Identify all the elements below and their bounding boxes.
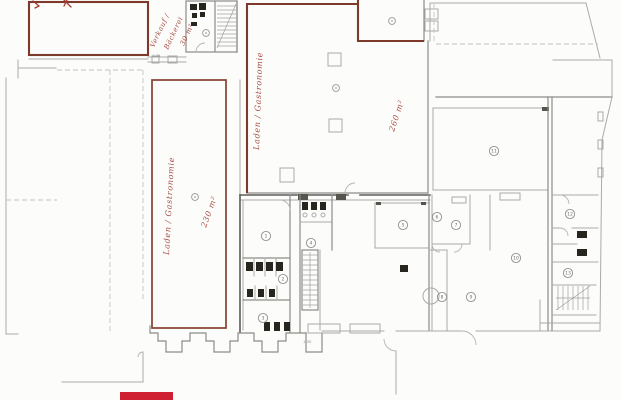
room-number: 2 — [282, 277, 285, 283]
scanned-floor-plan: Verkauf / Bäckerei 30 m² Laden / Gastron… — [0, 0, 622, 400]
floor-plan-drawing: Verkauf / Bäckerei 30 m² Laden / Gastron… — [0, 0, 622, 400]
wc-fixtures-bottom — [264, 322, 290, 331]
room-number: 8 — [441, 295, 444, 301]
room-number: 3 — [262, 316, 265, 322]
room-number: 10 — [513, 256, 519, 262]
room-number: 13 — [565, 271, 571, 277]
room-number: 7 — [455, 223, 458, 229]
dimension-label: 1.30 — [303, 339, 312, 344]
room-number: 5 — [402, 223, 405, 229]
survey-point-dot — [205, 32, 207, 34]
room-number: 9 — [470, 295, 473, 301]
room-number: 4 — [310, 241, 313, 247]
red-highlight-box — [120, 392, 173, 400]
room-number: 6 — [436, 215, 439, 221]
survey-point-dot — [335, 87, 337, 89]
room-number: 11 — [491, 149, 497, 155]
room-number: 12 — [567, 212, 573, 218]
room-number: 1 — [265, 234, 268, 240]
fixture-center — [400, 265, 408, 272]
survey-point-dot — [194, 196, 196, 198]
survey-point-dot — [391, 20, 393, 22]
wc-fixtures-mid-row2 — [247, 289, 275, 297]
dimension-label: 1.35 — [152, 53, 161, 58]
